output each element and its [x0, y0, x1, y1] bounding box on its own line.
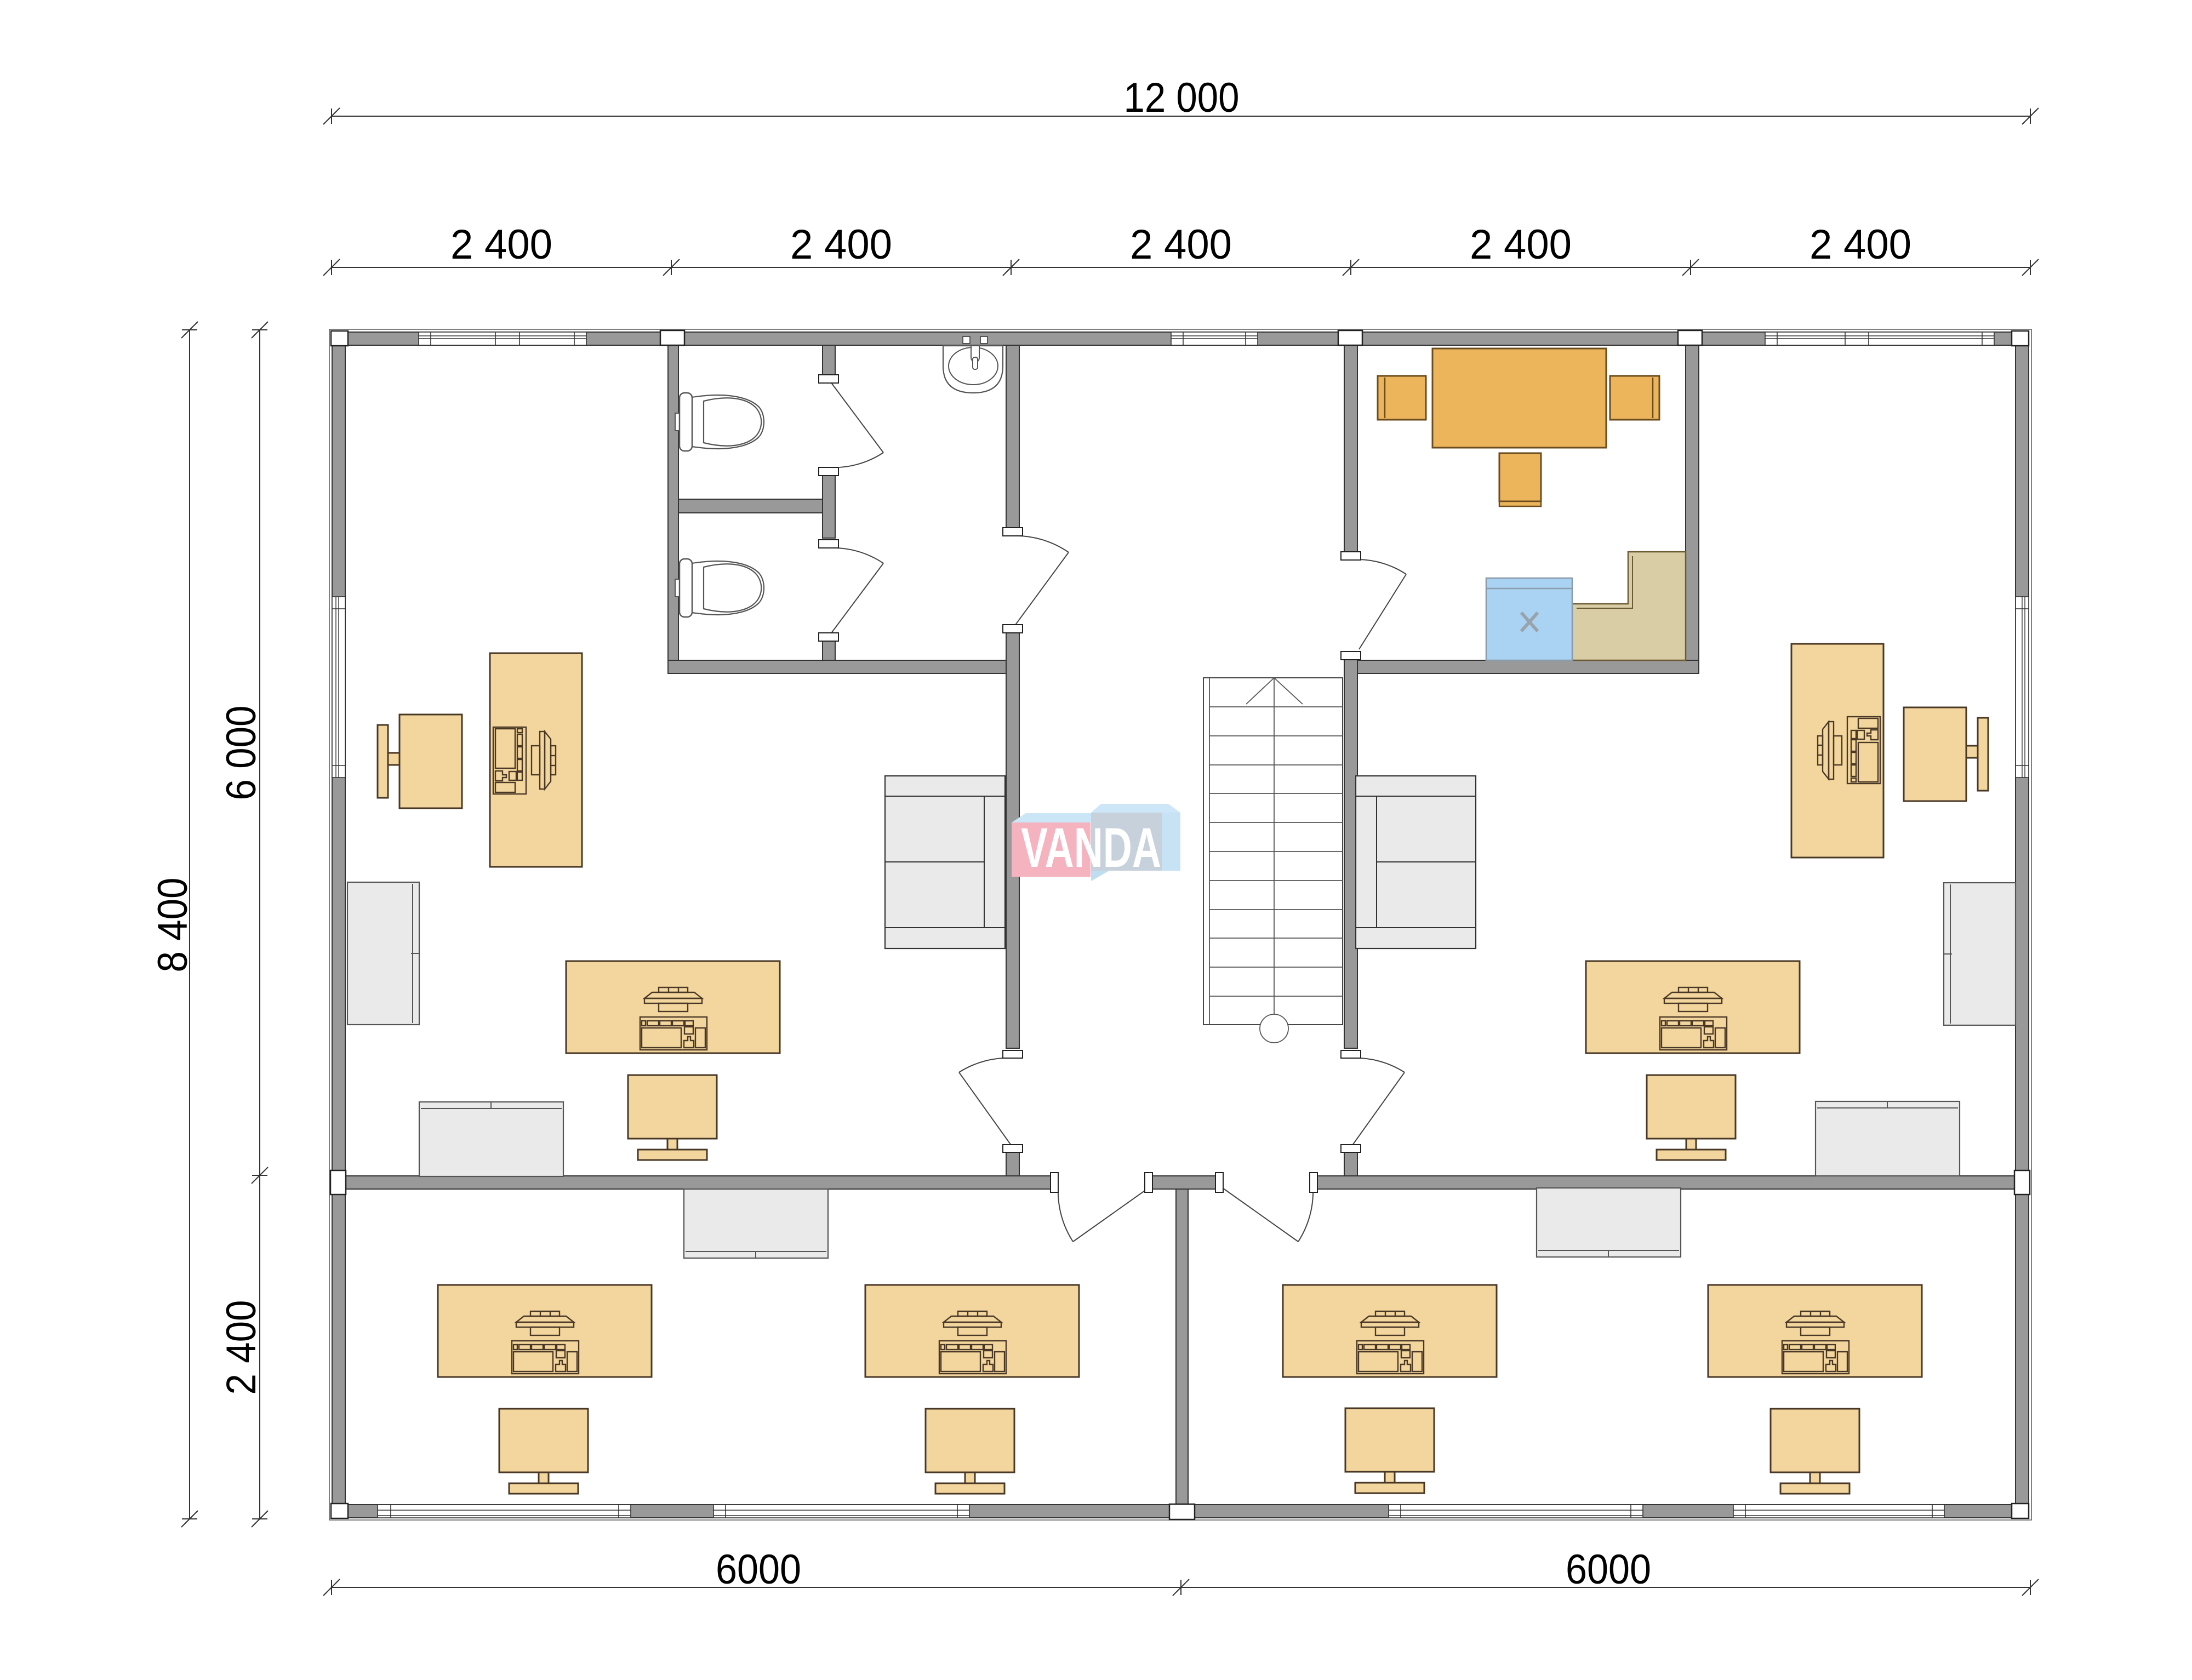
svg-text:6000: 6000: [1566, 1546, 1651, 1593]
svg-text:2 400: 2 400: [1809, 221, 1911, 268]
svg-text:12 000: 12 000: [1124, 75, 1240, 121]
svg-text:2 400: 2 400: [450, 221, 552, 268]
svg-text:8 400: 8 400: [150, 878, 196, 973]
svg-text:6000: 6000: [716, 1546, 801, 1593]
svg-text:2 400: 2 400: [1470, 221, 1572, 268]
svg-text:2 400: 2 400: [218, 1300, 265, 1395]
svg-text:VANDA: VANDA: [1021, 816, 1161, 879]
svg-text:2 400: 2 400: [790, 221, 892, 268]
svg-text:2 400: 2 400: [1130, 221, 1232, 268]
svg-text:6 000: 6 000: [218, 706, 265, 801]
